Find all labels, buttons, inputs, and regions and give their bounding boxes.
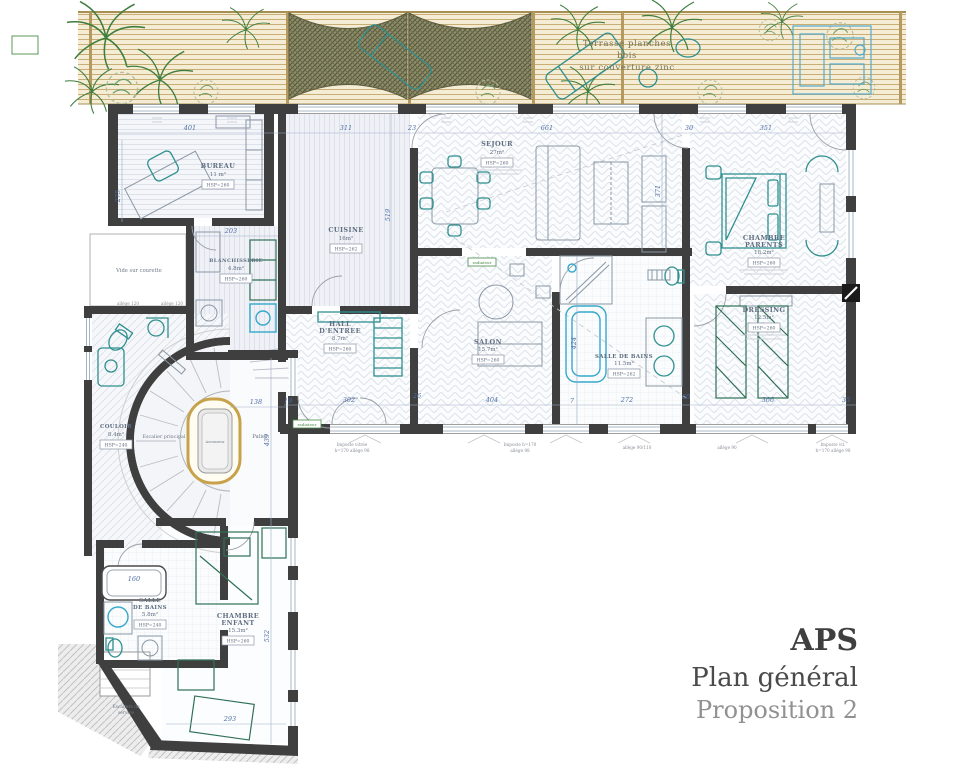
escalier-principal-label: Escalier principal — [143, 434, 186, 440]
hall-area: 8.7m² — [332, 335, 348, 342]
dimension-label: 19 — [284, 397, 292, 405]
bureau-hsp: HSP=260 — [207, 183, 230, 189]
dimension-label: 351 — [760, 124, 772, 132]
sheet-title: APS — [790, 623, 859, 658]
dimension-label: 293 — [223, 715, 236, 723]
dimension-label: 35 — [842, 396, 850, 404]
window-glyphs-north — [133, 105, 842, 114]
floor-plan-sheet: Terrasse planches bois sur couverture zi… — [0, 0, 960, 768]
legend-box — [12, 36, 38, 54]
blanchisserie-area: 4.8m² — [228, 265, 244, 272]
hall-name2: D'ENTREE — [319, 327, 361, 335]
radiateur-label-hall: radiateur — [293, 420, 321, 428]
dimension-label: 404 — [485, 396, 498, 404]
svg-text:radiateur: radiateur — [473, 260, 492, 265]
cuisine-area: 16m² — [339, 235, 353, 242]
dimension-label: 311 — [340, 124, 352, 132]
salle-de-bains-area: 11.5m² — [614, 360, 634, 367]
chambre-enfant-hsp: HSP=260 — [227, 639, 250, 645]
window-note: h=170 allège 98 — [815, 448, 850, 453]
sheet-proposition: Proposition 2 — [696, 696, 858, 724]
palier-label: Palier — [252, 434, 268, 440]
sejour-name: SEJOUR — [481, 140, 513, 148]
sdb-enfant-name1: SALLE — [139, 598, 161, 604]
sdb-enfant-name2: DE BAINS — [133, 605, 167, 611]
electrical-panel-icon — [842, 284, 860, 302]
salle-de-bains-hsp: HSP=262 — [613, 372, 636, 378]
window-note: allège 98 — [510, 448, 530, 453]
window-note: Imposte h=170 — [504, 442, 537, 447]
vide-courette-label: Vide sur courette — [115, 268, 162, 274]
cuisine-name: CUISINE — [328, 226, 363, 234]
dimension-label: 366 — [762, 396, 774, 404]
chambre-enfant-area: 15.3m² — [228, 627, 248, 634]
window-note: Imposte vit. — [820, 442, 845, 447]
svg-text:radiateur: radiateur — [298, 422, 317, 427]
escaliers-service-label1: Escaliers de — [112, 705, 140, 710]
bureau-name: BUREAU — [201, 162, 236, 170]
blanchisserie-hsp: HSP=260 — [225, 277, 248, 283]
ascenseur-label: Ascenseur — [205, 440, 225, 444]
hall-hsp: HSP=260 — [329, 347, 352, 353]
radiateur-label-salon: radiateur — [468, 258, 496, 266]
dimension-label: 23 — [407, 124, 416, 132]
escaliers-service-label2: service — [118, 711, 134, 716]
title-block: APS Plan général Proposition 2 — [691, 623, 858, 724]
dressing-hsp: HSP=260 — [753, 326, 776, 332]
salon-hsp: HSP=260 — [477, 358, 500, 364]
salon-name: SALON — [474, 338, 502, 346]
chambre-parents-area: 18.2m² — [754, 249, 774, 256]
terrace-label-line1: Terrasse planches — [583, 39, 671, 49]
terrace-label-line3: sur couverture zinc — [579, 63, 674, 73]
window-note: allège 120 — [161, 301, 183, 306]
sejour-area: 27m² — [490, 149, 504, 156]
couloir-hsp: HSP=240 — [105, 443, 128, 449]
couloir-name: COULOIR — [100, 424, 132, 430]
bureau-area: 11 m² — [210, 171, 226, 178]
dimension-label: 661 — [541, 124, 553, 132]
dimension-label: 203 — [224, 227, 237, 235]
dimension-label: 160 — [128, 575, 140, 583]
dimension-label: 532 — [263, 630, 271, 642]
window-note: allège 90 — [717, 445, 737, 450]
couloir-area: 8.4m² — [108, 431, 124, 438]
chambre-parents-hsp: HSP=260 — [753, 261, 776, 267]
window-note: allège 120 — [117, 301, 139, 306]
chambre-enfant-name2: ENFANT — [221, 619, 254, 627]
terrace: Terrasse planches bois sur couverture zi… — [12, 0, 906, 114]
dimension-label: 275 — [114, 190, 122, 203]
dimension-label: 401 — [183, 124, 196, 132]
dimension-label: 138 — [250, 398, 262, 406]
dimension-label: 302 — [343, 396, 355, 404]
window-note: h=170 allège 98 — [334, 448, 369, 453]
blanchisserie-name: BLANCHISSERIE — [209, 258, 263, 264]
dressing-area: 12.5m² — [754, 314, 774, 321]
dimension-label: 371 — [654, 185, 662, 197]
chambre-parents-name2: PARENTS — [745, 241, 783, 249]
dimension-label: 519 — [384, 209, 392, 221]
sheet-subtitle: Plan général — [691, 663, 858, 693]
floor-plan-drawing: Terrasse planches bois sur couverture zi… — [0, 0, 960, 768]
cuisine-hsp: HSP=262 — [335, 247, 358, 253]
salon-area: 15.7m² — [478, 346, 498, 353]
sdb-enfant-hsp: HSP=240 — [139, 623, 162, 629]
terrace-label-line2: bois — [617, 51, 637, 61]
sdb-enfant-area: 5.8m² — [142, 611, 158, 618]
window-note: Imposte vitrée — [337, 442, 368, 447]
window-note: allège 90/110 — [623, 445, 652, 450]
salle-de-bains-name: SALLE DE BAINS — [595, 354, 653, 360]
dimension-label: 26 — [412, 392, 421, 400]
sejour-hsp: HSP=260 — [486, 161, 509, 167]
dimension-label: 272 — [620, 396, 633, 404]
dimension-label: 60 — [682, 393, 690, 401]
dressing-name: DRESSING — [743, 306, 786, 314]
dimension-label: 30 — [685, 124, 693, 132]
dimension-label: 424 — [570, 337, 578, 350]
